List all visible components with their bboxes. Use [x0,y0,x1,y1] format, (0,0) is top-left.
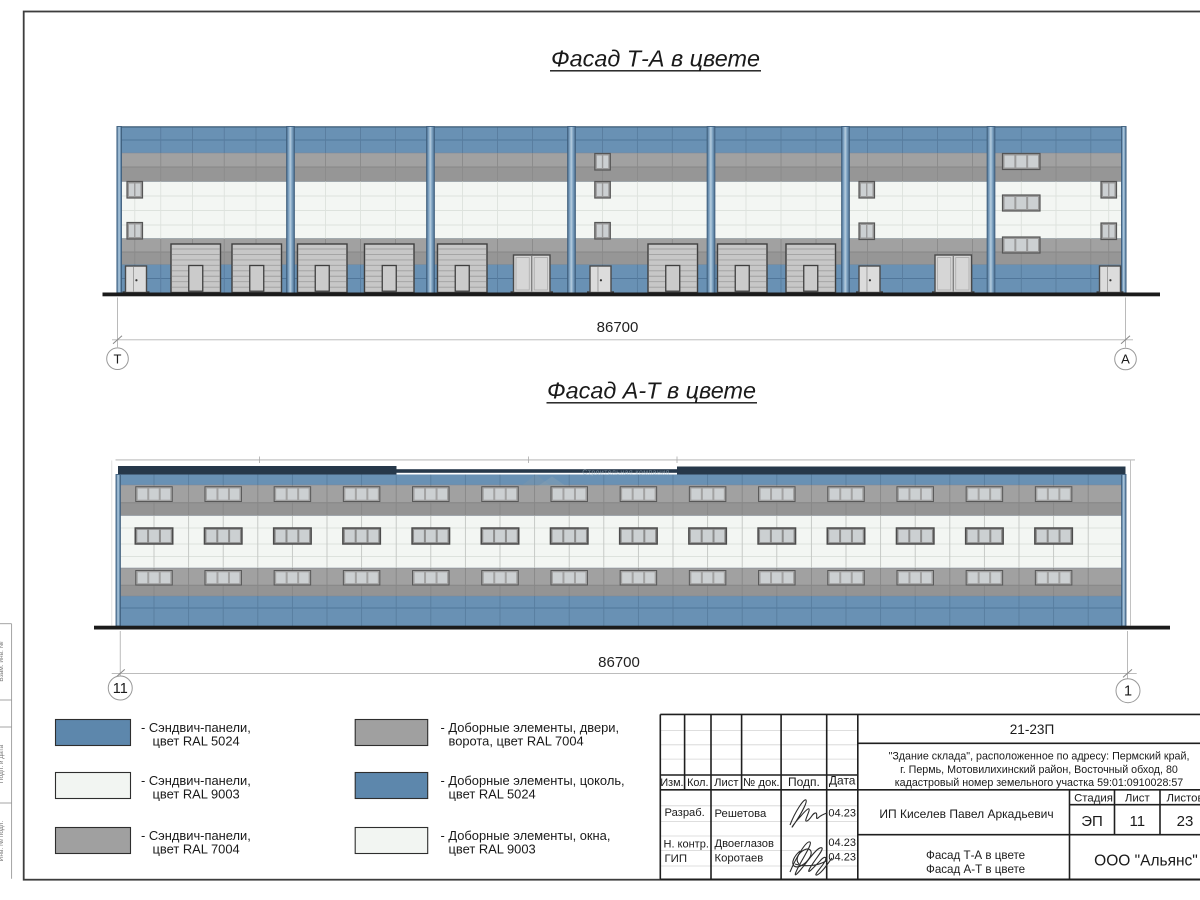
svg-text:Подп. и дата: Подп. и дата [0,744,5,783]
svg-text:Коротаев: Коротаев [715,852,764,864]
svg-text:11: 11 [1130,813,1146,830]
svg-text:цвет RAL 7004: цвет RAL 7004 [153,841,240,856]
svg-text:Лист: Лист [1125,793,1151,805]
svg-text:04.23: 04.23 [828,837,856,849]
svg-text:Н. контр.: Н. контр. [664,838,709,850]
svg-text:Фасад А-Т в цвете: Фасад А-Т в цвете [926,863,1025,876]
svg-text:23: 23 [1177,813,1194,830]
svg-text:ЭП: ЭП [1081,813,1103,830]
svg-text:Дата: Дата [829,774,856,788]
svg-text:цвет RAL 5024: цвет RAL 5024 [153,733,240,748]
svg-text:1: 1 [1124,684,1132,700]
svg-text:Стадия: Стадия [1074,793,1113,805]
svg-text:Двоеглазов: Двоеглазов [715,838,775,850]
svg-text:№ док.: № док. [743,777,780,789]
svg-text:86700: 86700 [597,319,639,336]
svg-text:цвет RAL 9003: цвет RAL 9003 [449,841,536,856]
svg-text:04.23: 04.23 [828,852,856,864]
svg-text:ГИП: ГИП [665,853,688,865]
svg-text:ИП Киселев Павел Аркадьевич: ИП Киселев Павел Аркадьевич [879,807,1053,821]
svg-text:Подп.: Подп. [788,775,820,789]
svg-text:Листов: Листов [1166,793,1200,805]
svg-text:Изм.: Изм. [660,777,683,789]
svg-text:Фасад Т-А в цвете: Фасад Т-А в цвете [551,46,760,72]
svg-text:"Здание склада", расположенное: "Здание склада", расположенное по адресу… [889,751,1190,763]
svg-text:Фасад Т-А в цвете: Фасад Т-А в цвете [926,849,1025,862]
svg-text:цвет RAL 5024: цвет RAL 5024 [449,786,536,801]
svg-text:11: 11 [113,681,128,697]
svg-text:86700: 86700 [598,654,640,671]
svg-text:Взам. инв. №: Взам. инв. № [0,641,5,681]
svg-text:кадастровый номер земельного у: кадастровый номер земельного участка 59:… [895,777,1184,789]
svg-text:цвет RAL 9003: цвет RAL 9003 [153,786,240,801]
svg-text:Строительная компания: Строительная компания [582,470,669,477]
svg-text:А: А [1121,352,1130,367]
svg-text:ООО "Альянс": ООО "Альянс" [1094,853,1198,870]
svg-text:Т: Т [114,351,122,366]
svg-text:г. Пермь, Мотовилихинский райо: г. Пермь, Мотовилихинский район, Восточн… [900,764,1178,776]
svg-text:Лист: Лист [714,777,738,789]
svg-text:Фасад А-Т в цвете: Фасад А-Т в цвете [547,378,756,404]
svg-text:Решетова: Решетова [715,808,767,820]
svg-text:Инв. № подл.: Инв. № подл. [0,821,5,862]
svg-text:ворота, цвет RAL 7004: ворота, цвет RAL 7004 [449,733,584,748]
svg-text:21-23П: 21-23П [1010,722,1055,737]
svg-text:Разраб.: Разраб. [665,807,705,819]
svg-text:04.23: 04.23 [828,808,856,820]
svg-text:Кол.: Кол. [687,777,708,789]
